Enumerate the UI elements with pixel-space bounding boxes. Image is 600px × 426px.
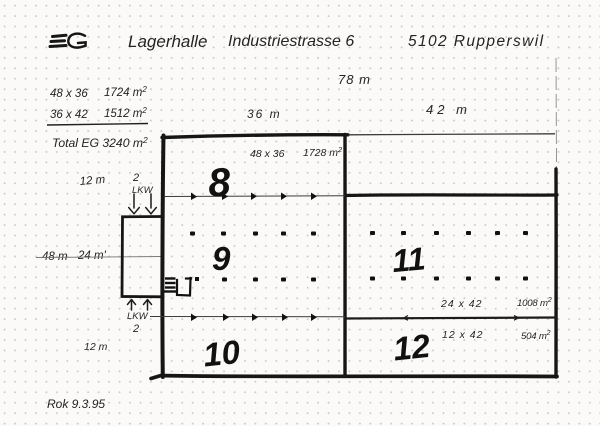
svg-text:10: 10 [201,333,242,374]
svg-text:78 m: 78 m [338,72,371,87]
svg-text:1724 m2: 1724 m2 [104,85,147,99]
svg-text:24 x 42: 24 x 42 [440,298,482,310]
svg-text:Industriestrasse 6: Industriestrasse 6 [228,33,354,50]
svg-text:Rok 9.3.95: Rok 9.3.95 [47,397,105,411]
svg-text:Total EG 3240 m2: Total EG 3240 m2 [52,135,148,150]
svg-text:1512 m2: 1512 m2 [104,106,147,120]
svg-text:12 m: 12 m [84,341,108,353]
svg-text:2: 2 [132,172,139,184]
svg-text:48 x 36: 48 x 36 [50,88,88,100]
svg-text:Lagerhalle: Lagerhalle [128,32,207,51]
svg-text:8: 8 [207,160,233,205]
svg-text:2: 2 [132,323,139,335]
svg-text:12 m: 12 m [79,174,106,188]
svg-text:1728 m2: 1728 m2 [303,145,343,159]
svg-text:504 m2: 504 m2 [521,330,551,342]
svg-text:36 x 42: 36 x 42 [50,109,88,121]
svg-text:9: 9 [212,240,231,277]
svg-text:36 m: 36 m [247,107,282,121]
svg-text:12 x 42: 12 x 42 [442,329,483,341]
svg-text:12: 12 [391,327,432,368]
svg-text:48 x 36: 48 x 36 [250,148,285,160]
svg-text:1008 m2: 1008 m2 [517,297,552,309]
svg-text:42 m: 42 m [426,102,471,117]
svg-text:24 m': 24 m' [77,250,107,262]
svg-text:5102 Rupperswil: 5102 Rupperswil [408,33,544,50]
svg-text:LKW: LKW [127,311,149,322]
svg-text:11: 11 [391,240,427,279]
